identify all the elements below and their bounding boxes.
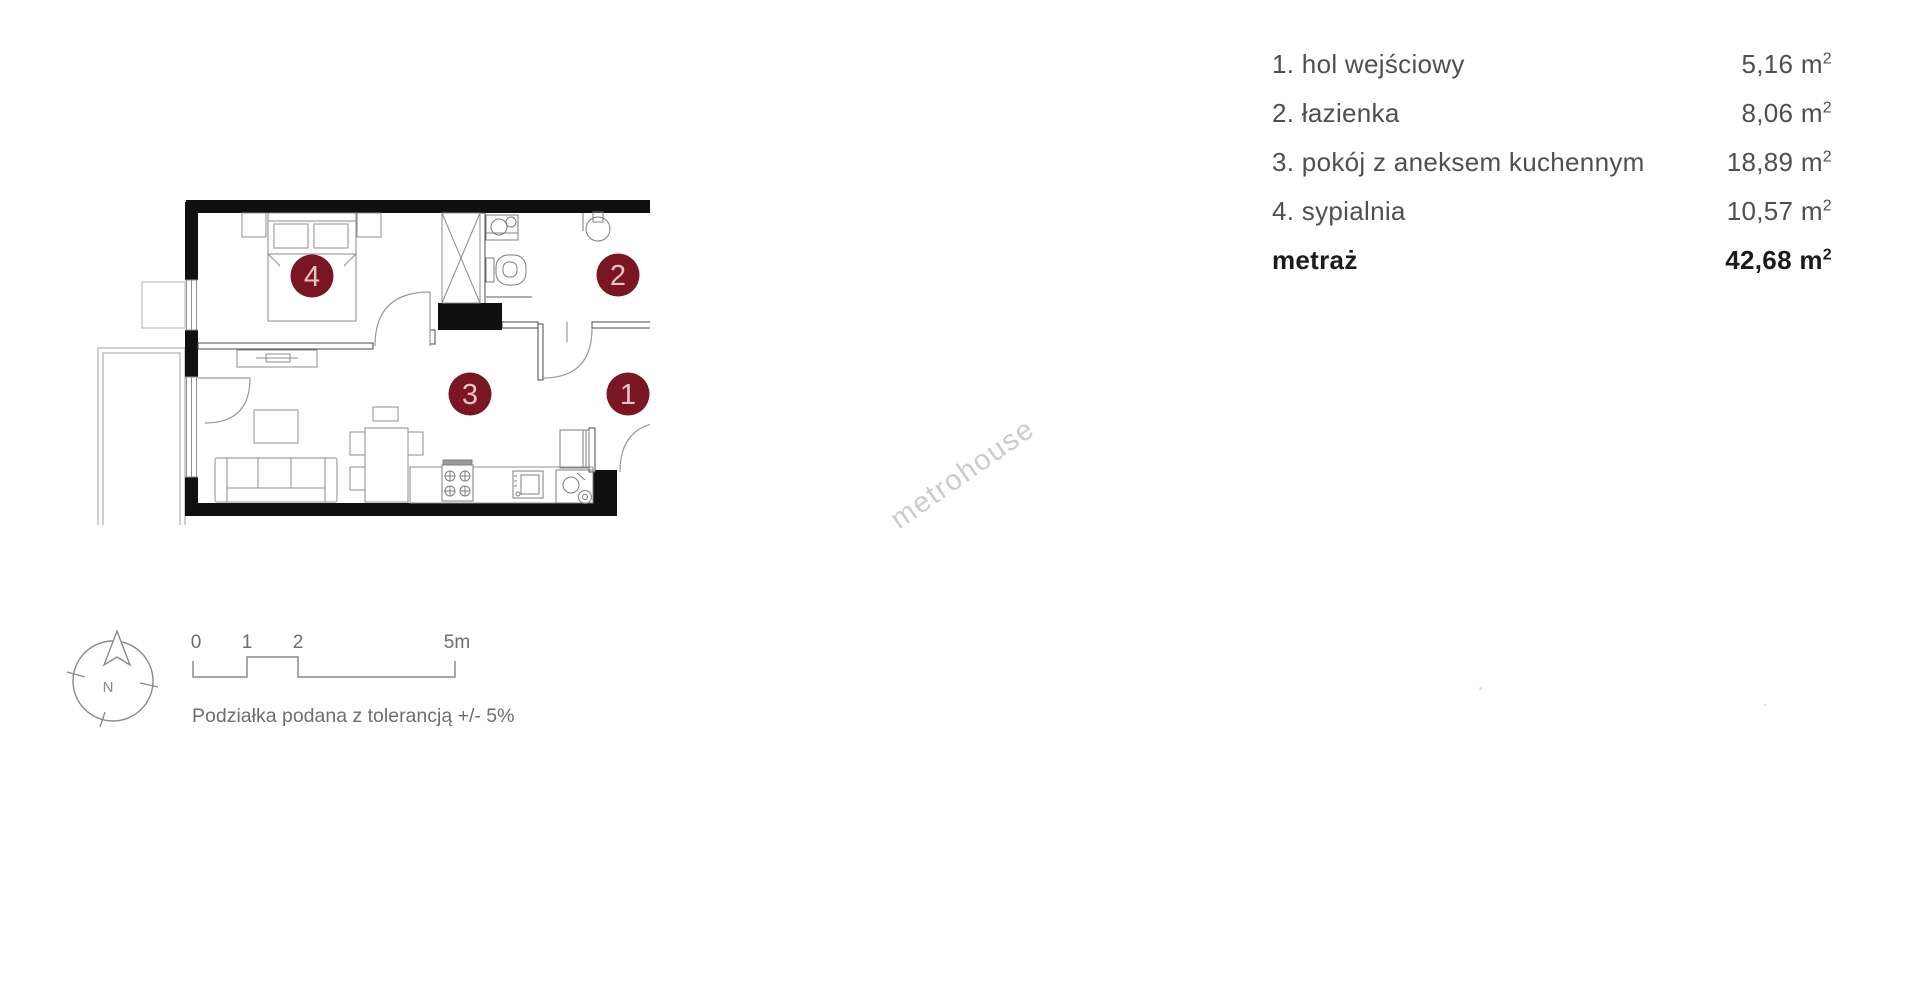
outer-walls [185,200,650,516]
scale-bar [193,657,455,677]
kitchen-counter [410,467,593,503]
window-ledge [142,282,185,328]
svg-text:1: 1 [242,632,253,653]
room-marker-1: 1 [607,373,650,416]
watermark: metrohouse [876,406,1051,542]
structural-column [438,303,502,330]
legend-total-label: metraż [1272,245,1358,276]
legend-area: 5,16 m2 [1741,49,1832,80]
kitchen-sink [556,470,593,504]
interior-walls [198,213,650,472]
stove [442,460,473,501]
legend-row: 3. pokój z aneksem kuchennym 18,89 m2 [1272,144,1832,180]
svg-text:2: 2 [610,260,626,292]
wardrobe-bedroom [442,213,480,303]
speck [1479,687,1482,690]
legend-label: 4. sypialnia [1272,196,1406,227]
coffee-table [254,410,298,443]
room-marker-2: 2 [597,254,640,297]
page: 1 2 3 4 1. hol wejściowy 5,16 m2 2. łazi… [0,0,1920,985]
legend-area: 8,06 m2 [1741,98,1832,129]
room-marker-3: 3 [449,373,492,416]
balcony [98,348,185,525]
washbasin [583,212,610,241]
north-arrow-icon [104,631,130,665]
dining-table [350,407,423,502]
legend-label: 2. łazienka [1272,98,1400,129]
north-label: N [103,679,114,696]
svg-text:4: 4 [304,261,320,293]
bedroom-door [375,292,430,346]
nightstand-left [242,213,266,237]
legend-total-area: 42,68 m2 [1725,245,1832,276]
svg-text:0: 0 [191,632,202,653]
balcony-window-door [185,377,198,477]
oven [513,471,543,498]
fridge [560,430,589,468]
scale-caption: Podziałka podana z tolerancją +/- 5% [192,705,515,727]
nightstand-right [357,213,381,237]
legend-label: 1. hol wejściowy [1272,49,1465,80]
legend-area: 18,89 m2 [1727,147,1832,178]
svg-text:1: 1 [620,379,636,411]
svg-text:3: 3 [462,379,478,411]
legend-row: 2. łazienka 8,06 m2 [1272,95,1832,131]
sofa [215,458,337,502]
scale-labels: 0 1 2 5m [191,632,470,653]
legend-row: 4. sypialnia 10,57 m2 [1272,193,1832,229]
legend-total-row: metraż 42,68 m2 [1272,242,1832,278]
svg-text:2: 2 [293,632,304,653]
balcony-door [198,378,250,423]
room-marker-4: 4 [291,255,334,298]
svg-text:5m: 5m [444,632,470,653]
legend-area: 10,57 m2 [1727,196,1832,227]
legend-row: 1. hol wejściowy 5,16 m2 [1272,46,1832,82]
floor-plan: 1 2 3 4 [90,195,650,525]
bathroom-sink [486,215,518,240]
bathroom-door [543,322,592,378]
toilet [486,255,526,285]
scale-figure: N 0 1 2 5m Podziałka podana z tolerancją… [60,618,530,743]
entrance-door [620,422,650,472]
bedroom-window [185,280,198,330]
tv-console [237,350,317,367]
speck [1764,704,1766,706]
legend-label: 3. pokój z aneksem kuchennym [1272,147,1645,178]
